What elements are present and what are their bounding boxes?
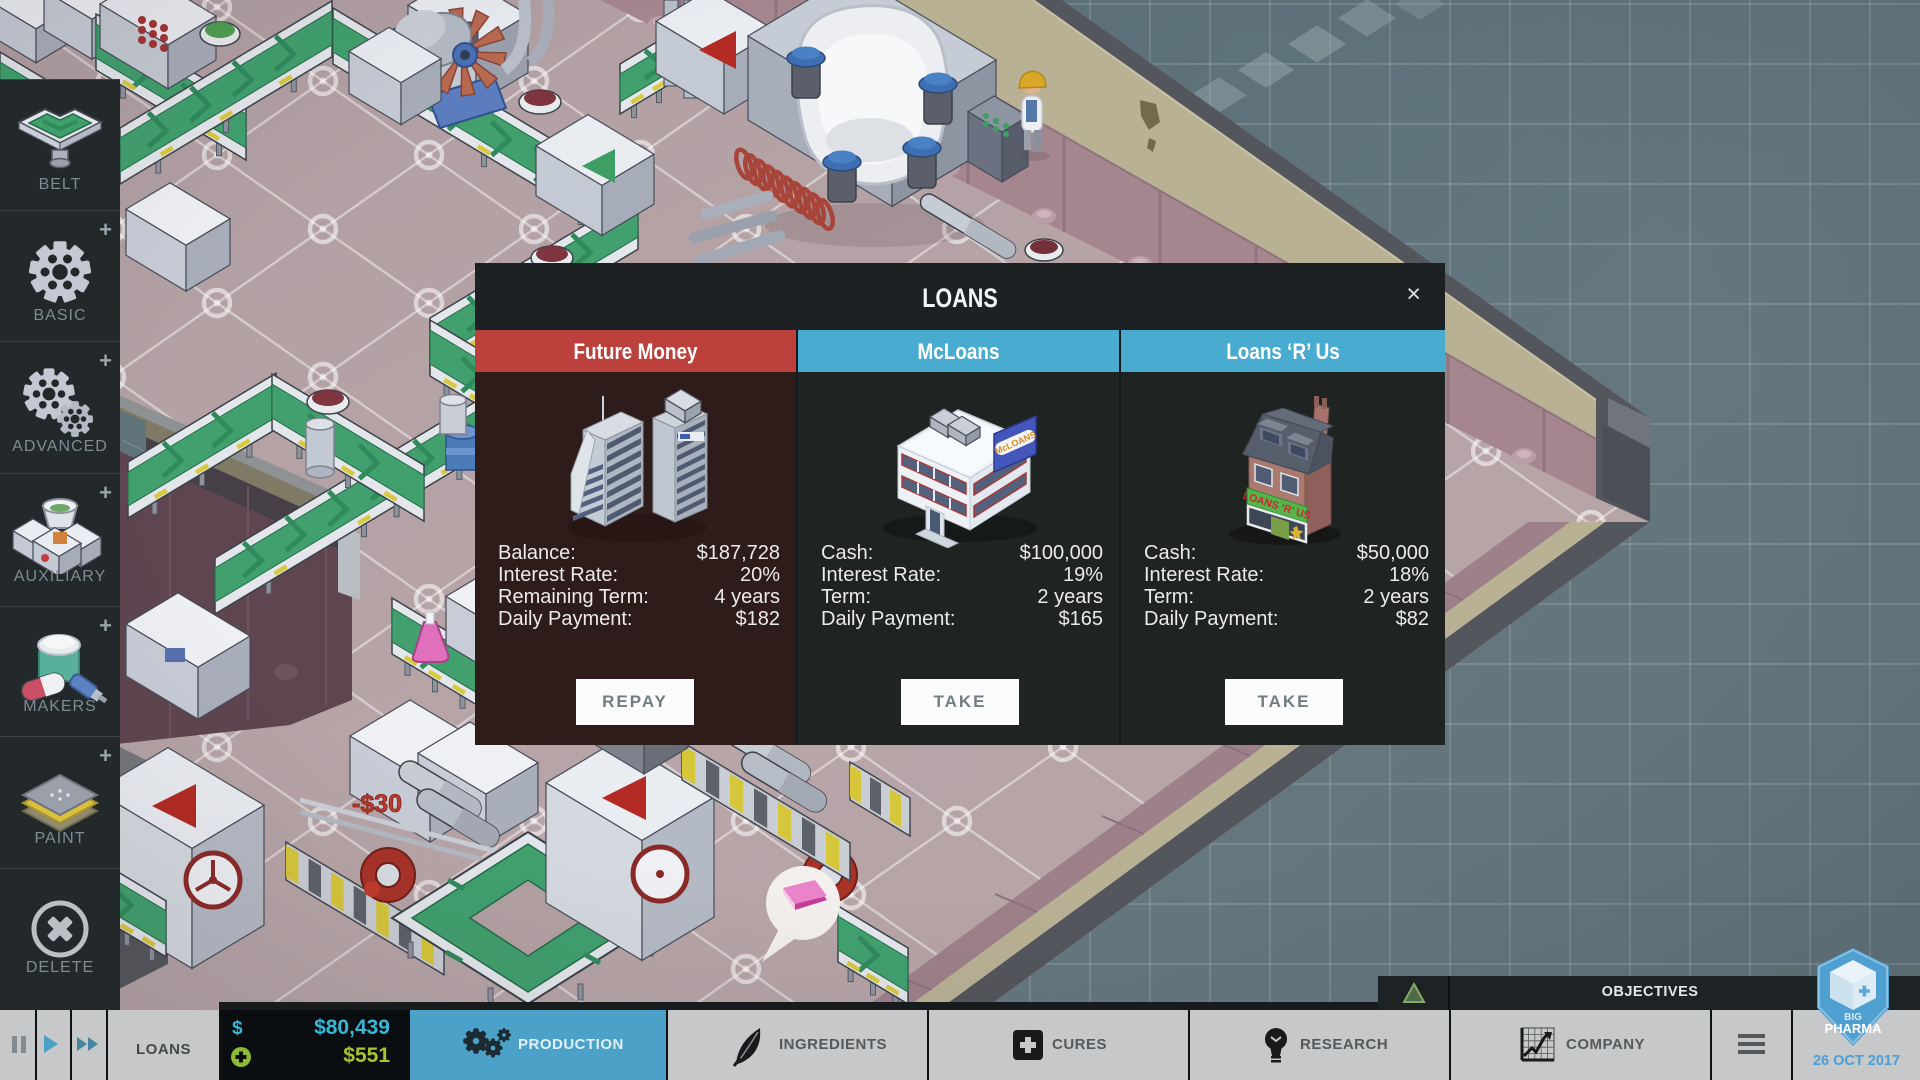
svg-text:PHARMA: PHARMA <box>1824 1021 1882 1036</box>
